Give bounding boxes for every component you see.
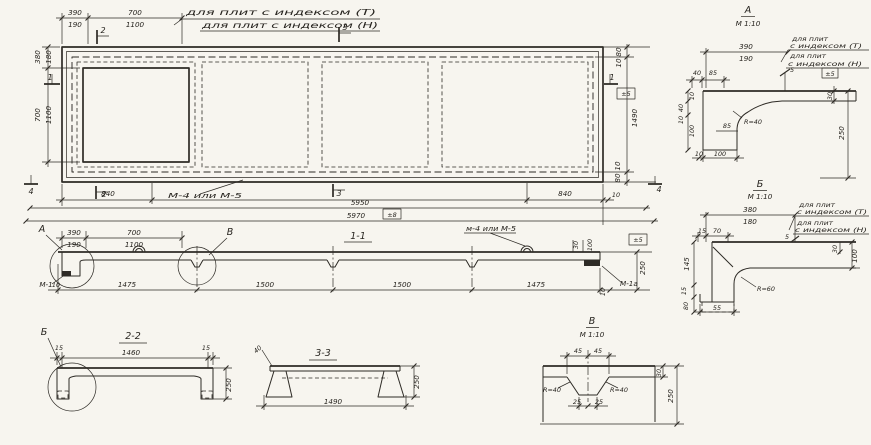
db-dim-145: 145 <box>682 257 691 271</box>
s11-mark-m1a: М-1а <box>620 279 638 288</box>
da-dim-390: 390 <box>739 42 753 51</box>
s11-weld-label: м-4 или М-5 <box>466 224 516 233</box>
plan-dim-80-bot: 80 <box>613 173 622 183</box>
da-radius-40: R=40 <box>744 118 762 126</box>
detail-b-scale: М 1:10 <box>748 192 773 201</box>
plan-dim-700: 700 <box>128 8 142 17</box>
da-dim-100-bot: 100 <box>714 150 726 158</box>
section-3-3-title: 3-3 <box>315 348 331 359</box>
da-note-2b: с индексом (Н) <box>788 60 862 68</box>
detail-b-title: Б <box>757 179 764 190</box>
s33-dim-40: 40 <box>252 344 263 355</box>
s11-dim-1500-right: 1500 <box>393 280 412 289</box>
plan-dim-10-edge: 10 <box>612 191 620 199</box>
detail-v-view: В М 1:10 45 45 R=40 R=40 25 25 30 250 <box>540 316 684 427</box>
plan-view: 390 190 700 1100 для плит с индексом (Т)… <box>24 8 663 225</box>
section-mark-3: 3 <box>342 23 347 32</box>
da-tolerance-5: ±5 <box>825 70 834 78</box>
s11-dim-1475-right: 1475 <box>527 280 546 289</box>
s11-dim-390: 390 <box>67 228 81 237</box>
da-note-2a: для плит <box>789 52 826 60</box>
s11-dim-10-left: 10 <box>52 281 60 289</box>
detail-b-callout-circle <box>48 363 96 411</box>
s22-dim-15-right: 15 <box>202 344 210 352</box>
drawing-sheet: 390 190 700 1100 для плит с индексом (Т)… <box>0 0 871 445</box>
s11-dim-1475-left: 1475 <box>118 280 137 289</box>
s33-dim-1490: 1490 <box>324 397 343 406</box>
s22-dim-15-left: 15 <box>55 344 63 352</box>
s11-dim-190: 190 <box>67 240 81 249</box>
plan-dim-380: 380 <box>33 50 42 64</box>
detail-a-scale: М 1:10 <box>736 19 761 28</box>
section-mark-4: 4 <box>656 185 661 194</box>
da-dim-85-mid: 85 <box>723 122 731 130</box>
s11-mark-m1: М-1 <box>39 280 52 289</box>
s22-dim-250: 250 <box>224 378 233 392</box>
plan-note-index-t: для плит с индексом (Т) <box>184 8 376 17</box>
detail-b-view: Б М 1:10 380 180 для плит с индексом (Т)… <box>680 179 869 316</box>
s33-dim-250: 250 <box>412 375 421 389</box>
section-2-2-title: 2-2 <box>125 331 141 342</box>
section-mark-2: 2 <box>100 26 105 35</box>
da-dim-100-left: 100 <box>688 125 696 137</box>
plan-dim-190: 190 <box>68 20 82 29</box>
dv-dim-25-left: 25 <box>573 398 581 406</box>
plan-dim-10-bot: 10 <box>613 161 622 171</box>
plan-dim-390: 390 <box>68 8 82 17</box>
db-note-1b: с индексом (Т) <box>797 208 867 216</box>
plan-weld-label: М-4 или М-5 <box>168 191 243 200</box>
s22-dim-1460: 1460 <box>122 348 141 357</box>
da-dim-10-top: 10 <box>688 92 696 100</box>
db-dim-70: 70 <box>713 227 721 235</box>
plan-dim-1100-left: 1100 <box>44 105 53 124</box>
s11-dim-1100: 1100 <box>125 240 144 249</box>
db-dim-15-left: 15 <box>680 287 688 295</box>
plan-dim-5950: 5950 <box>351 198 370 207</box>
plan-tolerance-5: ±5 <box>621 90 630 98</box>
s11-tolerance-5: ±5 <box>633 236 642 244</box>
db-dim-15: 15 <box>698 227 706 235</box>
plan-dim-80-top: 80 <box>614 47 623 57</box>
detail-a-view: А М 1:10 для плит с индексом (Т) для пли… <box>677 5 869 181</box>
da-dim-40: 40 <box>693 69 701 77</box>
plan-dim-5970: 5970 <box>347 211 366 220</box>
plan-dim-1490: 1490 <box>630 108 639 127</box>
dv-radius-40-left: R=40 <box>543 386 561 394</box>
section-mark-3: 3 <box>336 189 341 198</box>
dv-radius-40-right: R=40 <box>610 386 628 394</box>
detail-v-title: В <box>589 316 596 327</box>
da-dim-85: 85 <box>709 69 717 77</box>
s11-dim-100: 100 <box>586 239 594 251</box>
dv-dim-45-left: 45 <box>574 347 582 355</box>
plan-dim-10-top: 10 <box>614 58 623 68</box>
plan-note-index-n: для плит с индексом (Н) <box>200 21 378 30</box>
dv-dim-45-right: 45 <box>594 347 602 355</box>
dv-dim-30: 30 <box>655 369 663 377</box>
dv-dim-250: 250 <box>666 389 675 403</box>
plan-dim-840-right: 840 <box>558 189 572 198</box>
db-dim-55: 55 <box>713 304 721 312</box>
db-dim-80: 80 <box>682 302 690 310</box>
da-dim-250: 250 <box>837 126 846 140</box>
da-dim-10-bot: 10 <box>695 150 703 158</box>
plan-section-flags <box>24 27 662 199</box>
detail-a-title: А <box>744 5 752 16</box>
da-note-1b: с индексом (Т) <box>790 42 862 50</box>
da-dim-30: 30 <box>826 92 834 100</box>
s11-dim-1500-left: 1500 <box>256 280 275 289</box>
plan-dim-700-left: 700 <box>33 108 42 122</box>
s22-detail-b-label: Б <box>41 327 48 338</box>
db-dim-100: 100 <box>850 249 859 263</box>
detail-v-scale: М 1:10 <box>580 330 605 339</box>
plan-linework <box>62 47 603 182</box>
plan-dim-180: 180 <box>44 50 53 64</box>
db-dim-380: 380 <box>743 205 757 214</box>
drawing-canvas: 390 190 700 1100 для плит с индексом (Т)… <box>0 0 871 445</box>
section-3-3: 40 3-3 250 1490 <box>252 344 421 410</box>
s11-dim-10-right: 10 <box>599 288 607 296</box>
section-mark-4: 4 <box>28 187 33 196</box>
da-dim-190: 190 <box>739 54 753 63</box>
detail-a-callout-label: А <box>38 224 46 235</box>
plan-tolerance-8: ±8 <box>387 211 396 219</box>
db-radius-60: R=60 <box>757 285 775 293</box>
section-mark-1: 1 <box>47 73 52 82</box>
weld-plate-marks <box>62 260 600 276</box>
section-mark-1: 1 <box>609 73 614 82</box>
s11-dim-30: 30 <box>572 241 580 249</box>
db-dim-5: 5 <box>785 233 789 241</box>
section-1-1: А 390 190 700 1100 В 1-1 м-4 или М-5 М-1… <box>38 224 652 296</box>
plan-dim-1100: 1100 <box>126 20 145 29</box>
db-note-2b: с индексом (Н) <box>795 226 867 234</box>
dv-dim-25-right: 25 <box>595 398 603 406</box>
da-dim-5: 5 <box>790 66 794 74</box>
db-dim-180: 180 <box>743 217 757 226</box>
detail-v-callout-label: В <box>227 227 234 238</box>
s11-dim-700: 700 <box>127 228 141 237</box>
section-1-1-title: 1-1 <box>350 231 366 242</box>
s11-dim-250: 250 <box>638 261 647 275</box>
section-2-2: Б 2-2 1460 15 15 250 <box>41 327 233 411</box>
da-dim-40-left: 40 <box>677 104 685 112</box>
plan-dim-840-left: 840 <box>101 189 115 198</box>
db-dim-30: 30 <box>831 245 839 253</box>
da-dim-10-left: 10 <box>677 116 685 124</box>
